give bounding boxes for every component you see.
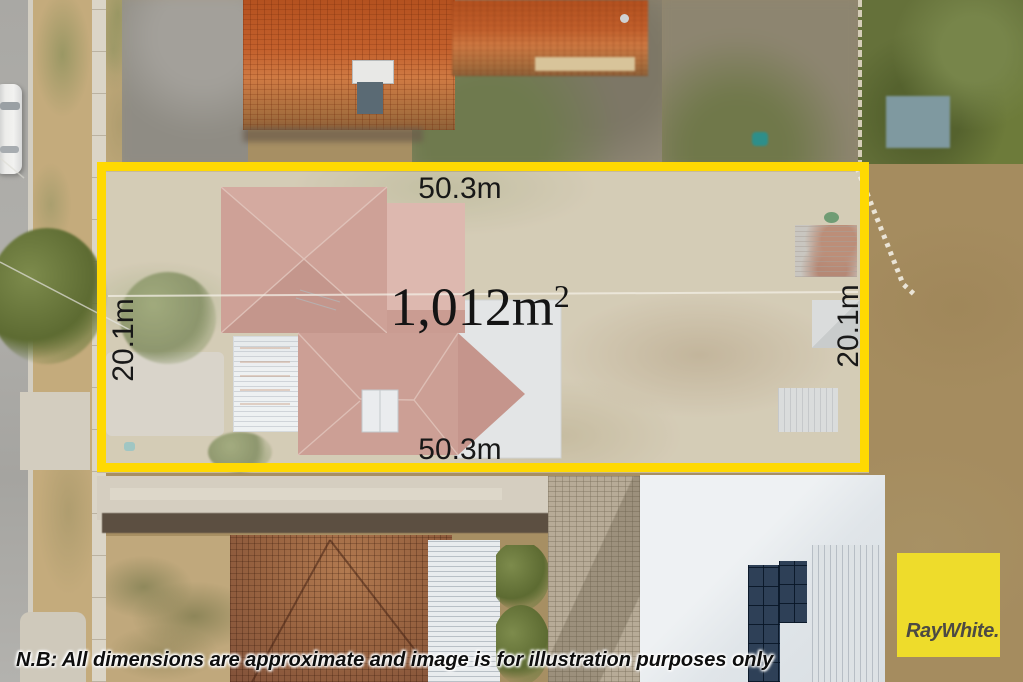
dimension-label-right: 20.1m [832,284,866,367]
raywhite-logo: RayWhite. [897,553,1000,657]
disclaimer-text: N.B: All dimensions are approximate and … [16,649,773,672]
dimension-label-bottom: 50.3m [380,433,540,467]
dimension-label-top: 50.3m [380,172,540,206]
aerial-property-photo: 50.3m 50.3m 20.1m 20.1m 1,012m2 RayWhite… [0,0,1023,682]
area-value: 1,012m [390,277,554,337]
area-superscript: 2 [554,278,570,314]
raywhite-logo-text: RayWhite. [906,620,999,643]
area-label: 1,012m2 [390,280,570,334]
dimension-label-left: 20.1m [107,298,141,381]
